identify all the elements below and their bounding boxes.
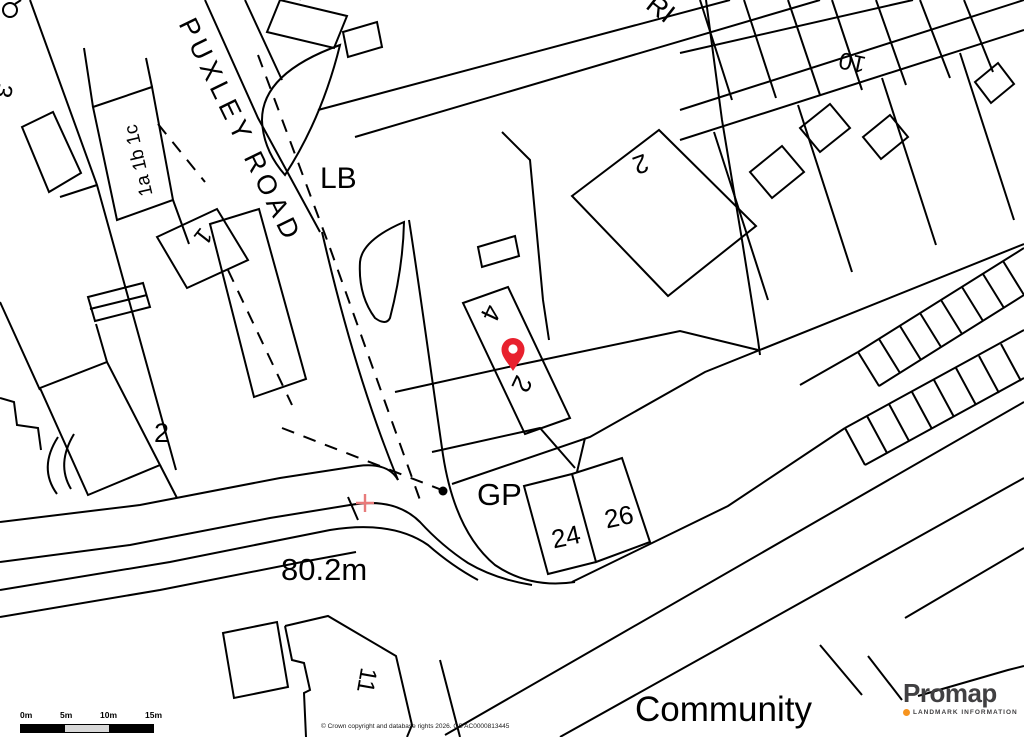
scale-bar-track (20, 724, 154, 733)
garage-row-upper (858, 248, 1024, 386)
promap-logo: Promap LANDMARK INFORMATION (903, 680, 1018, 716)
map-canvas (0, 0, 1024, 737)
pin-parcel (395, 132, 758, 468)
scale-tick-0: 0m (20, 711, 32, 720)
label-lb: LB (320, 164, 357, 194)
right-band-edges (452, 244, 1024, 582)
scale-bar: 0m 5m 10m 15m (20, 711, 170, 733)
promap-logo-text: Promap (903, 680, 1018, 706)
building-number-11: 11 (352, 666, 380, 695)
stream-curves (48, 434, 74, 494)
scale-tick-10: 10m (100, 711, 117, 720)
post-dot (439, 487, 448, 496)
spot-height-label: 80.2m (281, 554, 367, 585)
scale-tick-5: 5m (60, 711, 72, 720)
bottom-left-road (0, 465, 532, 617)
buildings-top-centre (267, 0, 382, 57)
building-2-upper (572, 0, 850, 355)
map-symbol-tick (15, 0, 21, 4)
landmark-tagline: LANDMARK INFORMATION (913, 709, 1018, 716)
scale-tick-15: 15m (145, 711, 162, 720)
scale-segment-3 (109, 725, 153, 732)
scale-segment-2 (65, 725, 109, 732)
map-viewport: 3 8 PUXLEY ROAD RI LB 1a 1b 1c 1 2 2 4 2… (0, 0, 1024, 737)
location-pin-icon[interactable] (502, 338, 525, 371)
building-number-26: 26 (602, 501, 636, 532)
copyright-attribution: © Crown copyright and database rights 20… (321, 723, 509, 730)
building-number-10: 10 (837, 47, 868, 76)
benchmark-cross-icon (356, 494, 374, 512)
label-gp: GP (477, 479, 522, 510)
scale-segment-1 (21, 725, 65, 732)
building-number-2-left: 2 (154, 420, 169, 447)
landmark-dot-icon (903, 709, 910, 716)
label-community: Community (635, 692, 812, 727)
map-symbol-circle (3, 3, 17, 17)
terraces-top-right (680, 0, 1024, 300)
ne-road-edges (318, 0, 820, 137)
building-number-24: 24 (549, 521, 583, 552)
